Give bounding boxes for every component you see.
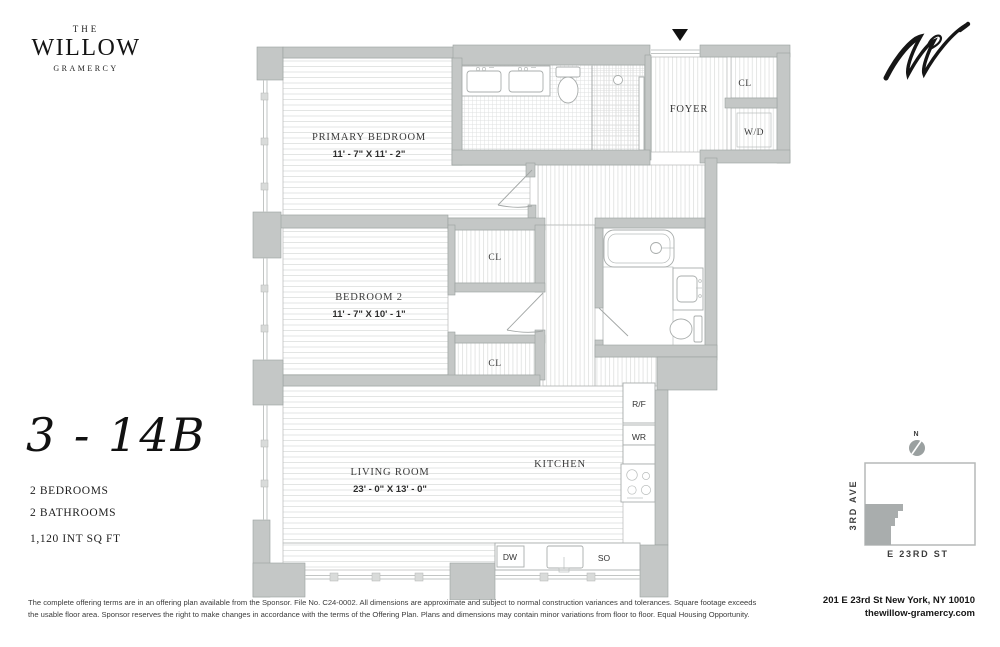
bathtub: [604, 230, 674, 267]
floorplan-page: THE WILLOW GRAMERCY 3 - 14B 2 BEDROOMS 2…: [0, 0, 1000, 647]
brand-pre: THE: [26, 24, 146, 34]
bath2-sink: [677, 276, 697, 302]
hall-floor-b: [543, 225, 595, 386]
toilet2-tank: [694, 316, 702, 342]
brand-name: WILLOW: [26, 35, 146, 62]
closet-mid-bottom-label: CL: [488, 359, 501, 369]
address-line: 201 E 23rd St New York, NY 10010: [715, 594, 975, 607]
counter-box: [623, 445, 655, 464]
toilet-tank: [556, 67, 580, 77]
refrigerator-label: R/F: [632, 399, 646, 409]
closet-entry-floor: [731, 57, 777, 98]
living-room-dims: 23' - 0" X 13' - 0": [353, 484, 427, 495]
script-w-monogram-icon: [876, 16, 980, 104]
sink-left: [467, 71, 501, 92]
bedroom2-door: [507, 293, 543, 330]
unit-bedrooms: 2 BEDROOMS: [30, 485, 109, 497]
address-block: 201 E 23rd St New York, NY 10010 thewill…: [715, 594, 975, 620]
kitchen-sink: [547, 546, 583, 568]
avenue-label: 3RD AVE: [848, 480, 858, 531]
compass-n-label: N: [913, 431, 918, 438]
unit-bathrooms: 2 BATHROOMS: [30, 507, 116, 519]
closet-entry-label: CL: [738, 79, 751, 89]
brand-logo: THE WILLOW GRAMERCY: [26, 24, 146, 73]
bath1-door-leaf: [639, 77, 644, 150]
kitchen-label: KITCHEN: [534, 459, 586, 470]
toilet-bowl: [558, 77, 578, 103]
disclaimer-text: The complete offering terms are in an of…: [28, 597, 766, 620]
street-label: E 23RD ST: [887, 549, 949, 559]
unit-area: 1,120 INT SQ FT: [30, 533, 121, 545]
stove-oven-label: SO: [598, 553, 611, 563]
primary-bedroom-dims: 11' - 7" X 11' - 2": [333, 149, 406, 160]
entry-threshold: [651, 50, 700, 54]
sink-right: [509, 71, 543, 92]
unit-number: 3 - 14B: [26, 408, 206, 462]
living-room-label: LIVING ROOM: [350, 467, 429, 478]
bedroom2-label: BEDROOM 2: [335, 292, 403, 303]
brand-sub: GRAMERCY: [26, 64, 146, 73]
foyer-label: FOYER: [670, 104, 708, 115]
key-map: N 3RD AVE E 23RD ST: [835, 425, 985, 570]
floorplan-drawing: PRIMARY BEDROOM 11' - 7" X 11' - 2" BEDR…: [250, 18, 795, 600]
closet-mid-top-label: CL: [488, 253, 501, 263]
hall-floor-a: [538, 165, 705, 225]
shower-drain: [614, 76, 623, 85]
entry-arrow-icon: [672, 29, 688, 41]
toilet2-bowl: [670, 319, 692, 339]
hall-floor-c: [595, 357, 657, 386]
wr-label: WR: [632, 432, 646, 442]
website-line: thewillow-gramercy.com: [715, 607, 975, 620]
cooktop: [621, 464, 655, 502]
dishwasher-label: DW: [503, 552, 517, 562]
bedroom2-dims: 11' - 7" X 10' - 1": [332, 309, 405, 320]
primary-bedroom-label: PRIMARY BEDROOM: [312, 132, 426, 143]
tub-faucet: [651, 243, 662, 254]
washer-dryer-label: W/D: [744, 128, 764, 138]
